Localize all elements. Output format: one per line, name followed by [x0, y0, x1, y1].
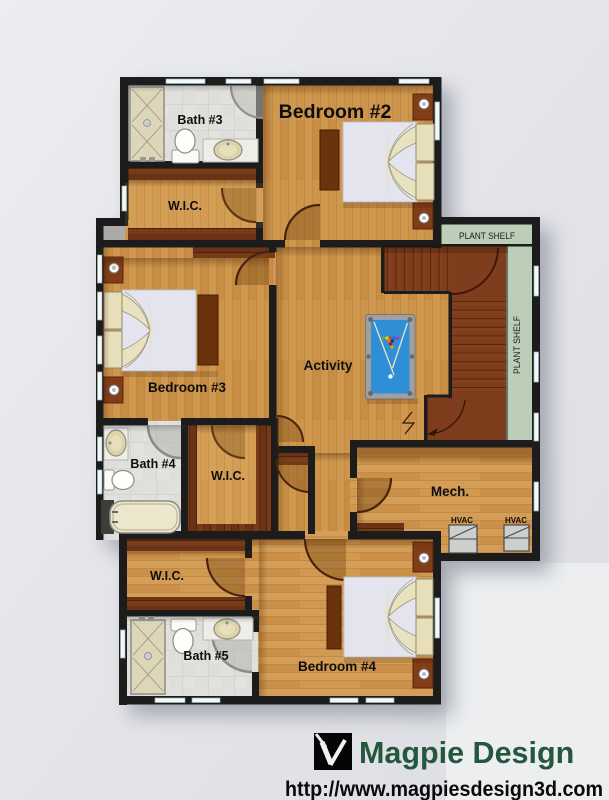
svg-text:Bedroom #3: Bedroom #3 — [148, 380, 227, 395]
svg-text:W.I.C.: W.I.C. — [211, 469, 245, 483]
svg-text:Magpie Design: Magpie Design — [359, 736, 574, 770]
svg-text:Bedroom #2: Bedroom #2 — [279, 101, 392, 123]
svg-text:Activity: Activity — [304, 358, 353, 373]
svg-text:HVAC: HVAC — [505, 515, 527, 525]
svg-text:Bath #3: Bath #3 — [177, 113, 222, 127]
svg-text:Bath #4: Bath #4 — [130, 457, 175, 471]
svg-text:W.I.C.: W.I.C. — [168, 199, 202, 213]
svg-text:HVAC: HVAC — [451, 515, 473, 525]
svg-text:PLANT SHELF: PLANT SHELF — [459, 231, 515, 242]
svg-text:Bedroom #4: Bedroom #4 — [298, 659, 377, 674]
svg-text:Mech.: Mech. — [431, 484, 469, 499]
svg-text:PLANT SHELF: PLANT SHELF — [512, 316, 523, 374]
svg-text:http://www.magpiesdesign3d.com: http://www.magpiesdesign3d.com — [285, 778, 603, 800]
svg-text:Bath #5: Bath #5 — [183, 649, 228, 663]
svg-text:W.I.C.: W.I.C. — [150, 569, 184, 583]
